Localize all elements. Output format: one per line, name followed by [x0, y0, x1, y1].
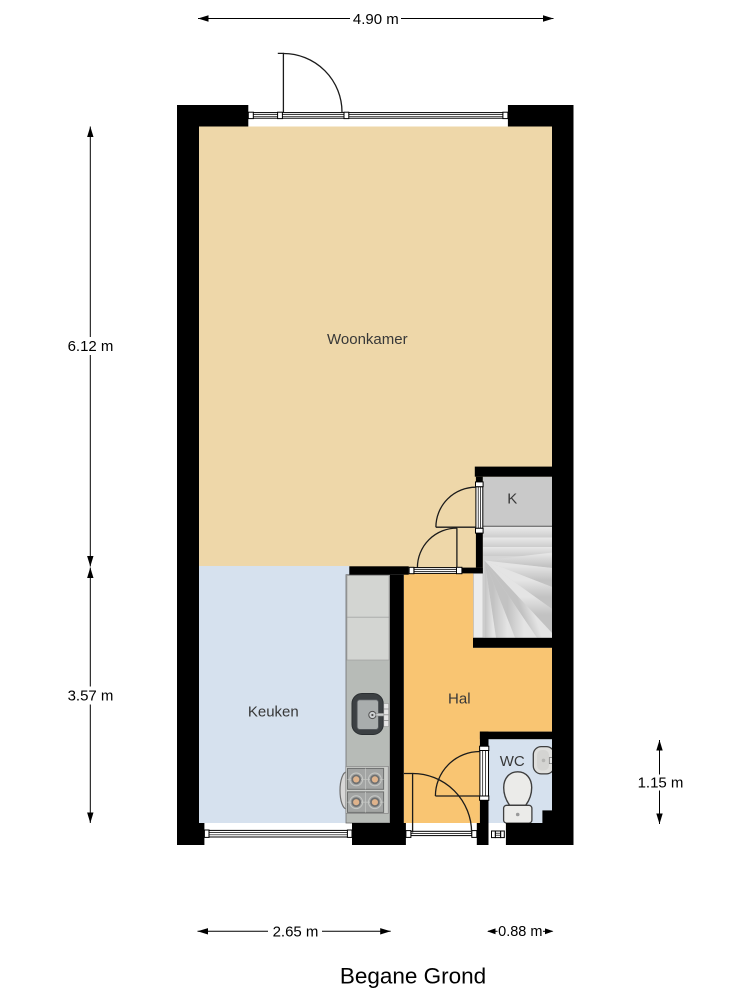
svg-text:2.65 m: 2.65 m [273, 923, 319, 940]
svg-text:1.15 m: 1.15 m [638, 775, 684, 792]
svg-text:K: K [507, 490, 517, 507]
svg-text:Woonkamer: Woonkamer [327, 331, 408, 348]
svg-text:3.57 m: 3.57 m [68, 688, 114, 705]
svg-text:6.12 m: 6.12 m [68, 338, 114, 355]
svg-text:Hal: Hal [448, 691, 471, 708]
svg-text:4.90 m: 4.90 m [353, 11, 399, 28]
svg-text:Begane Grond: Begane Grond [340, 964, 486, 989]
svg-text:Keuken: Keuken [248, 704, 299, 721]
svg-text:0.88 m: 0.88 m [498, 924, 542, 940]
svg-text:WC: WC [500, 753, 525, 770]
